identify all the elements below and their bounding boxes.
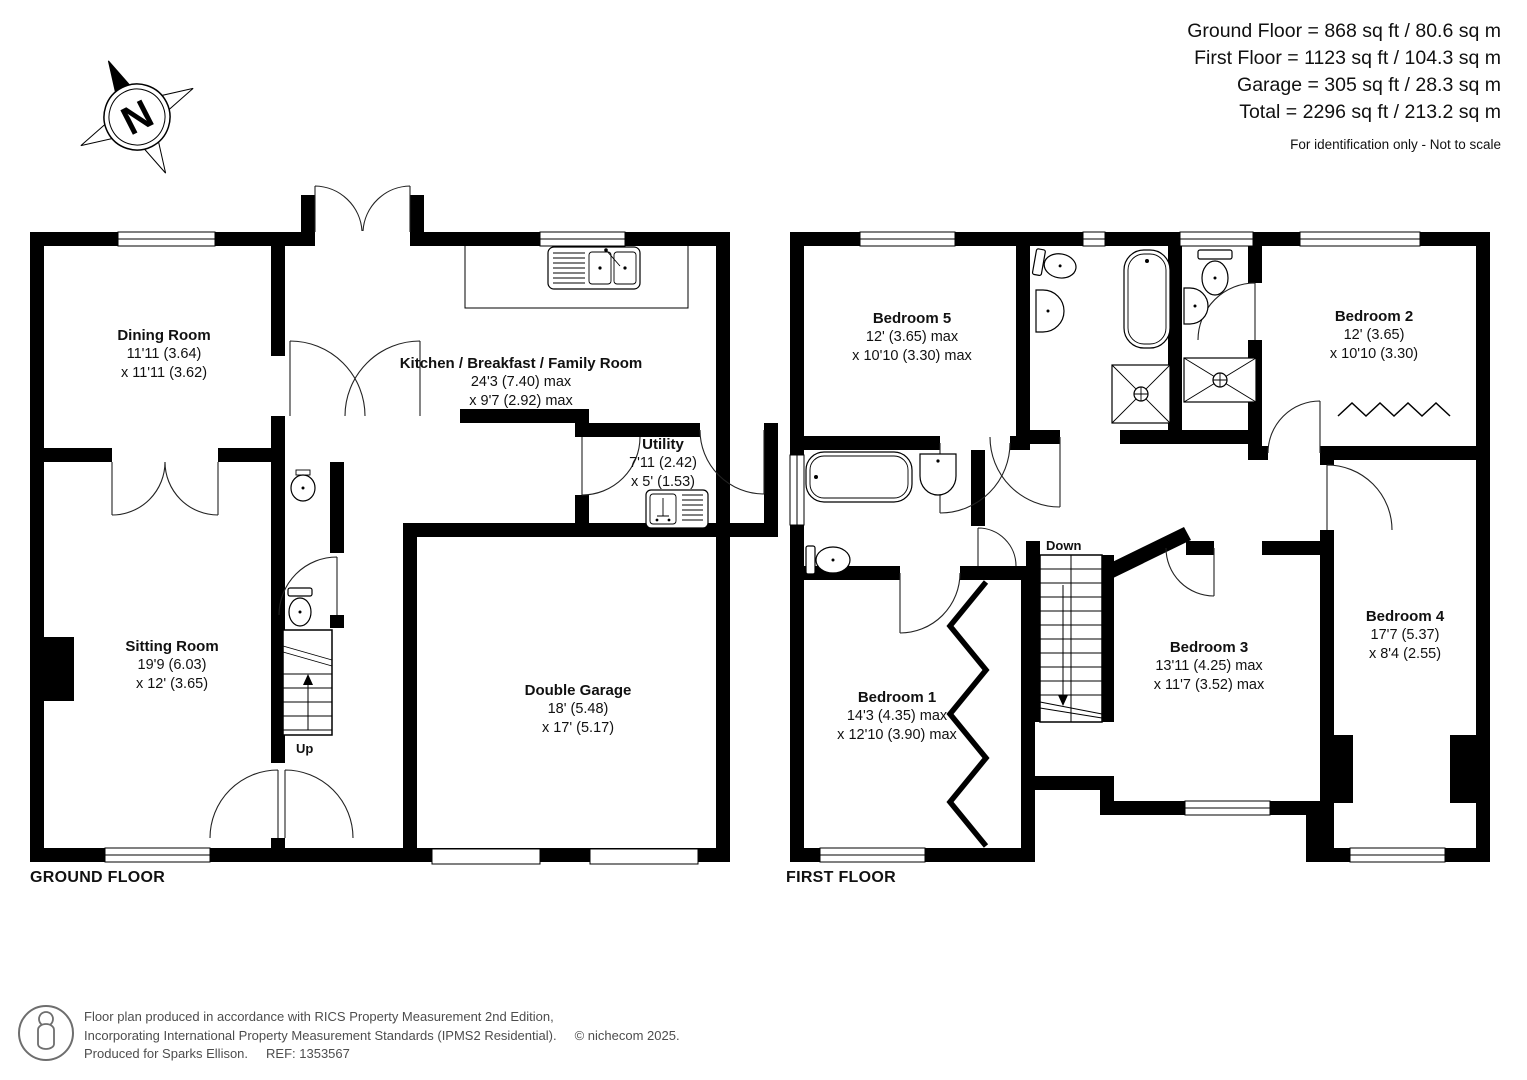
area-summary: Ground Floor = 868 sq ft / 80.6 sq m Fir…: [1187, 18, 1501, 158]
stairs-down: [1040, 555, 1102, 722]
stairs-up-label: Up: [296, 741, 313, 756]
dining-room-label: Dining Room 11'11 (3.64) x 11'11 (3.62): [117, 326, 210, 383]
wc-basin-icon: [291, 470, 315, 501]
bathroom-small-window: [1083, 232, 1105, 246]
floorplan-page: { "header": { "area_summary": [ "Ground …: [0, 0, 1527, 1080]
footer-line2: Incorporating International Property Mea…: [84, 1027, 680, 1046]
footer-produced-for: Produced for Sparks Ellison.: [84, 1046, 248, 1061]
footer-line2-text: Incorporating International Property Mea…: [84, 1028, 557, 1043]
ensuite-basin-icon: [1036, 290, 1064, 332]
kitchen-sink-icon: [548, 247, 640, 289]
french-door-opening: [315, 232, 410, 246]
bath-icon: [806, 452, 912, 502]
bedroom5-window: [860, 232, 955, 246]
utility-label: Utility 7'11 (2.42) x 5' (1.53): [629, 435, 697, 492]
footer-line1: Floor plan produced in accordance with R…: [84, 1008, 680, 1027]
footer-copyright: © nichecom 2025.: [575, 1028, 680, 1043]
stairs-up: [283, 630, 332, 735]
bedroom2-wardrobe-zigzag: [1338, 403, 1450, 416]
first-floor-title: FIRST FLOOR: [786, 869, 896, 887]
floorplan-drawing: N: [0, 0, 1527, 1080]
ensuite2-shower-icon: [1184, 358, 1256, 402]
wc-toilet-icon: [288, 588, 312, 626]
bedroom4-label: Bedroom 4 17'7 (5.37) x 8'4 (2.55): [1366, 607, 1444, 664]
toilet-icon: [806, 546, 850, 574]
bedroom2-window: [1300, 232, 1420, 246]
bedroom3-label: Bedroom 3 13'11 (4.25) max x 11'7 (3.52)…: [1154, 638, 1265, 695]
bedroom3-window: [1185, 801, 1270, 815]
ground-floor-title: GROUND FLOOR: [30, 869, 165, 887]
bedroom5-label: Bedroom 5 12' (3.65) max x 10'10 (3.30) …: [852, 309, 972, 366]
bedroom1-window: [820, 848, 925, 862]
area-line-garage: Garage = 305 sq ft / 28.3 sq m: [1187, 72, 1501, 99]
area-line-ground: Ground Floor = 868 sq ft / 80.6 sq m: [1187, 18, 1501, 45]
bathroom-window: [1180, 232, 1253, 246]
footer-disclaimer: Floor plan produced in accordance with R…: [84, 1008, 680, 1064]
garage-label: Double Garage 18' (5.48) x 17' (5.17): [525, 681, 632, 738]
ensuite-shower-icon: [1112, 365, 1170, 423]
bedroom2-label: Bedroom 2 12' (3.65) x 10'10 (3.30): [1330, 307, 1418, 364]
ensuite2-toilet-icon: [1198, 250, 1232, 295]
compass-rose-icon: N: [52, 32, 221, 201]
basin-icon: [920, 454, 956, 495]
landing-side-window: [790, 455, 804, 525]
ensuite2-basin-icon: [1184, 288, 1208, 324]
utility-sink-icon: [646, 490, 708, 528]
ground-floor-plan: [30, 186, 778, 864]
ensuite-toilet-icon: [1032, 249, 1078, 282]
bedroom4-window: [1350, 848, 1445, 862]
person-icon: [19, 1006, 73, 1060]
kitchen-window: [540, 232, 625, 246]
sitting-room-window: [105, 848, 210, 862]
scale-disclaimer: For identification only - Not to scale: [1187, 131, 1501, 158]
bedroom1-label: Bedroom 1 14'3 (4.35) max x 12'10 (3.90)…: [837, 688, 957, 745]
kitchen-label: Kitchen / Breakfast / Family Room 24'3 (…: [400, 354, 643, 411]
dining-window: [118, 232, 215, 246]
ensuite-bath-icon: [1124, 250, 1170, 348]
garage-door-right: [590, 849, 698, 864]
garage-door-left: [432, 849, 540, 864]
footer-line3: Produced for Sparks Ellison.REF: 1353567: [84, 1045, 680, 1064]
footer-ref: REF: 1353567: [266, 1046, 350, 1061]
area-line-first: First Floor = 1123 sq ft / 104.3 sq m: [1187, 45, 1501, 72]
stairs-down-label: Down: [1046, 538, 1081, 553]
area-line-total: Total = 2296 sq ft / 213.2 sq m: [1187, 99, 1501, 126]
sitting-room-label: Sitting Room 19'9 (6.03) x 12' (3.65): [125, 637, 218, 694]
